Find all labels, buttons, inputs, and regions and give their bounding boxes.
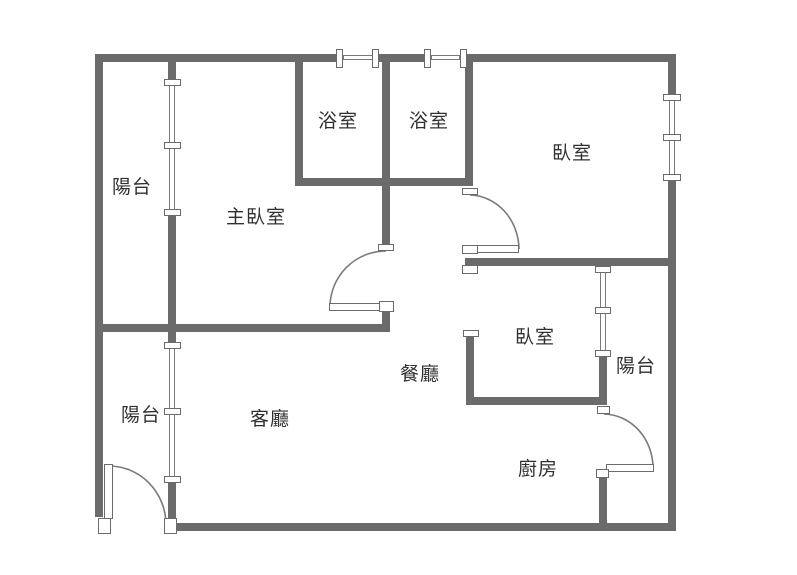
room-label-bathroom-left: 浴室 <box>318 111 358 131</box>
room-label-kitchen: 廚房 <box>518 459 558 479</box>
door-swing-arc-master-bedroom <box>330 251 386 307</box>
window-cap <box>663 134 681 141</box>
window-cap <box>663 94 681 101</box>
window-cap <box>595 350 611 357</box>
room-label-bedroom-top: 臥室 <box>552 143 592 163</box>
window-cap <box>164 79 181 86</box>
door-jamb <box>462 265 478 274</box>
door-swing-arc-kitchen <box>604 414 653 467</box>
door-arcs-layer <box>0 0 797 575</box>
room-label-bathroom-right: 浴室 <box>409 111 449 131</box>
window-cap <box>424 49 431 68</box>
window-cap <box>595 307 611 314</box>
floor-plan: 陽台 主臥室 浴室 浴室 臥室 餐廳 臥室 陽台 客廳 陽台 廚房 <box>0 0 797 575</box>
door-jamb <box>463 330 479 337</box>
room-label-balcony-bottom: 陽台 <box>121 405 161 425</box>
room-label-dining: 餐廳 <box>400 364 440 384</box>
room-label-balcony-right: 陽台 <box>616 356 656 376</box>
door-jamb <box>378 244 394 251</box>
window-cap <box>663 174 681 181</box>
room-label-master-bedroom: 主臥室 <box>226 207 286 227</box>
room-label-living: 客廳 <box>250 409 290 429</box>
door-jamb <box>596 469 609 478</box>
window-cap <box>460 49 467 68</box>
window-cap <box>164 209 181 216</box>
door-swing-arc-bedroom <box>470 195 519 249</box>
window-cap <box>164 142 181 149</box>
door-jamb <box>597 406 610 414</box>
window-cap <box>164 476 181 483</box>
window-cap <box>164 342 181 349</box>
window-cap <box>372 49 379 68</box>
door-leaf-bedroom <box>473 245 519 253</box>
door-jamb <box>462 245 478 254</box>
door-jamb <box>379 301 394 312</box>
door-jamb <box>98 518 111 534</box>
door-jamb <box>164 518 177 534</box>
door-jamb <box>462 188 478 195</box>
room-label-bedroom-middle: 臥室 <box>515 327 555 347</box>
window-cap <box>164 408 181 415</box>
window-cap <box>336 49 343 68</box>
door-leaf-entry <box>104 464 113 519</box>
room-label-balcony-top: 陽台 <box>112 177 152 197</box>
door-swing-arc-entry <box>109 466 166 524</box>
door-leaf-kitchen <box>606 464 654 472</box>
window-cap <box>595 266 611 273</box>
